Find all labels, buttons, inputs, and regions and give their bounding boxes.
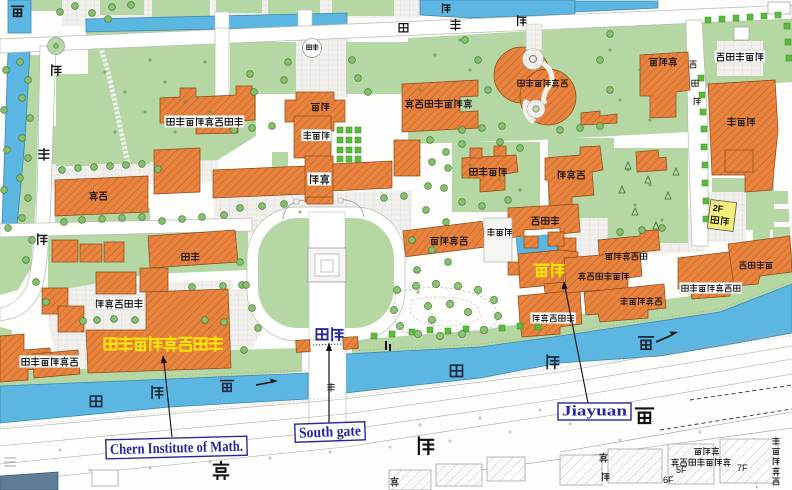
svg-text:2F: 2F bbox=[712, 203, 724, 214]
svg-text:South gate: South gate bbox=[299, 423, 362, 441]
svg-text:7F: 7F bbox=[737, 463, 748, 473]
svg-text:Jiayuan: Jiayuan bbox=[562, 404, 628, 420]
svg-text:5F: 5F bbox=[676, 465, 687, 475]
svg-text:6F: 6F bbox=[663, 475, 674, 485]
